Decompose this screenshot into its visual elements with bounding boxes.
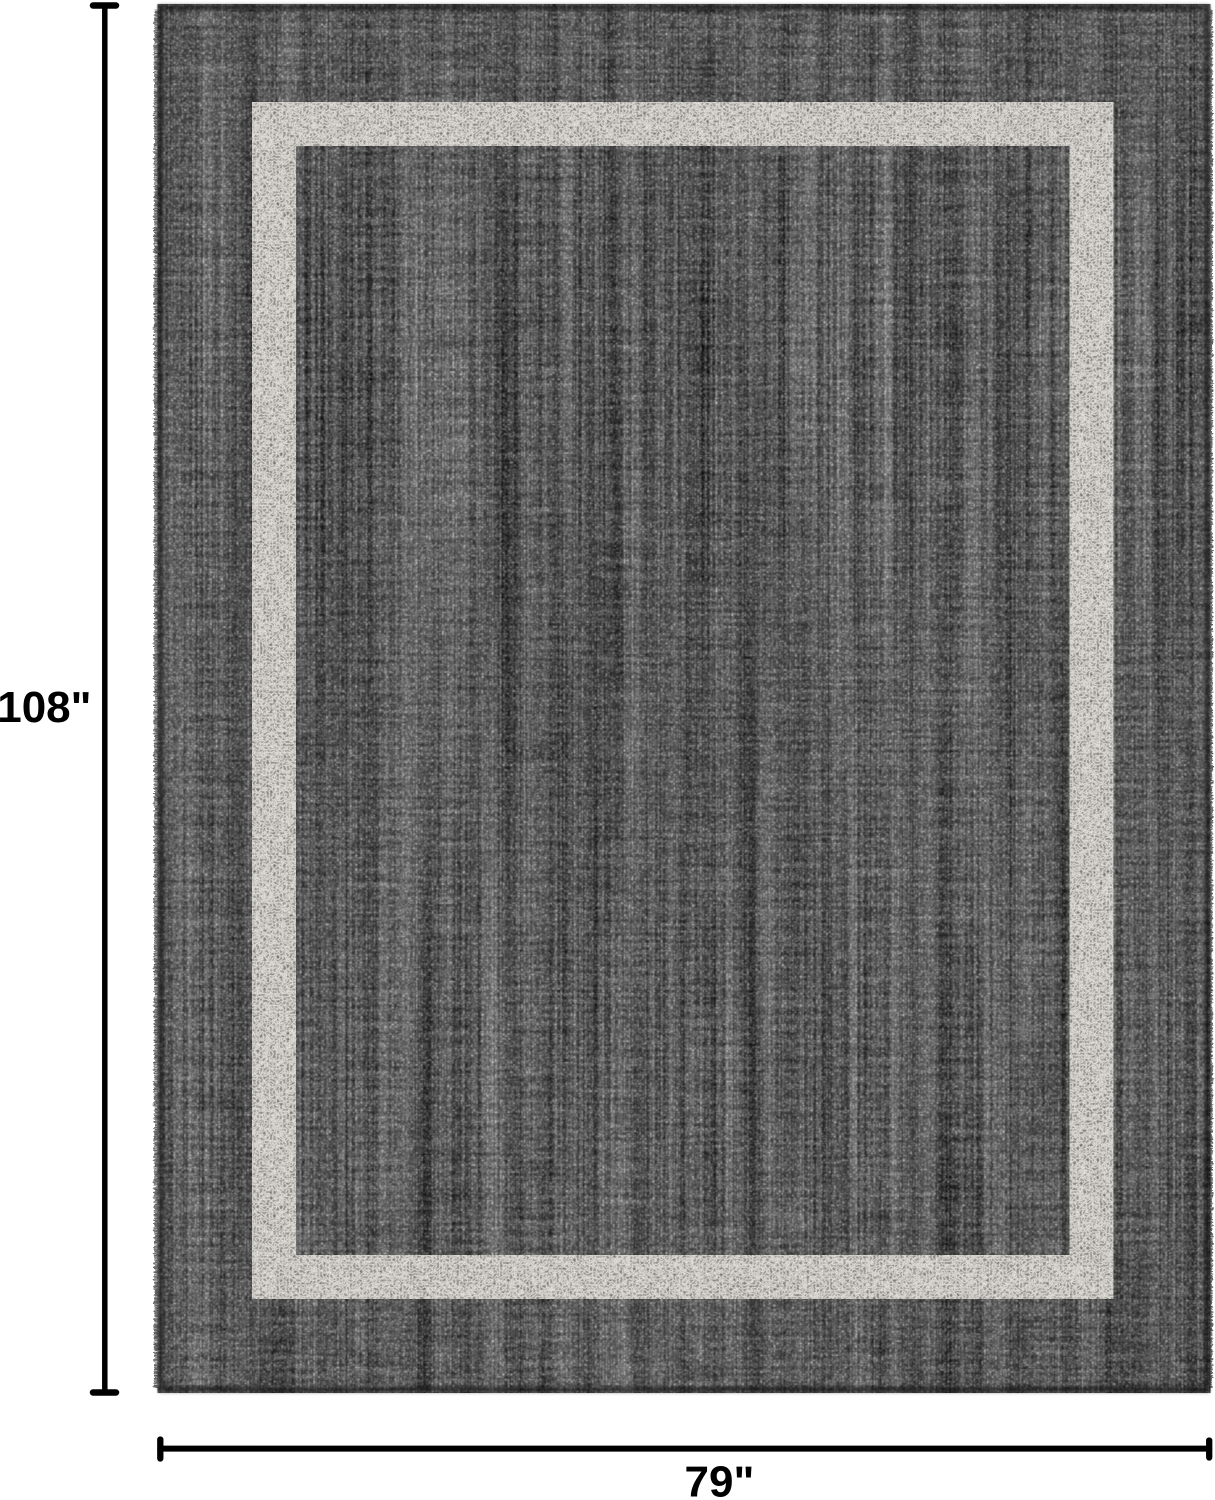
svg-text:79": 79" bbox=[685, 1458, 755, 1500]
svg-text:108": 108" bbox=[0, 683, 92, 732]
